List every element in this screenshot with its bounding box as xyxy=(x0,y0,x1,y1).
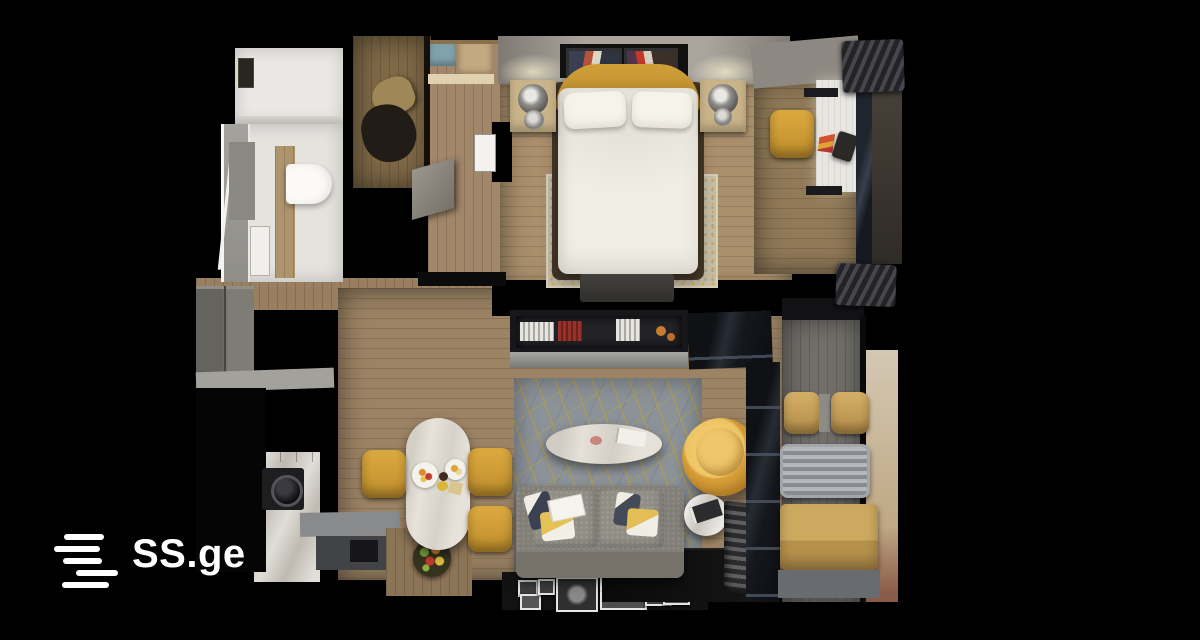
tv-bench xyxy=(580,274,674,302)
bed-pillow-right xyxy=(631,91,692,129)
balcony-bench xyxy=(780,504,878,570)
dining-chair-left xyxy=(362,450,406,498)
books-red xyxy=(558,321,582,341)
ss-bars-icon xyxy=(62,582,109,588)
floorplan-render: SS.ge xyxy=(0,0,1200,640)
bathroom-mirror-frame xyxy=(238,58,254,88)
gallery-frame-2 xyxy=(520,594,541,610)
shelf-decor-ball-2 xyxy=(667,333,675,341)
dining-plate-1 xyxy=(412,462,438,488)
gallery-frame-3 xyxy=(538,579,555,595)
dining-lemon xyxy=(437,481,448,491)
kitchen-cabinet-front xyxy=(264,390,328,462)
ss-bars-icon xyxy=(63,558,102,564)
ss-bars-icon xyxy=(54,546,100,552)
balcony-chair-divider xyxy=(819,394,830,432)
counter-sink-inset xyxy=(350,540,378,562)
table-lamp-left-glass xyxy=(524,110,544,130)
bedroom-window-glass xyxy=(856,80,872,266)
logo-text: SS.ge xyxy=(132,532,246,577)
balcony-glass-door xyxy=(746,362,780,602)
bed-pillow-left xyxy=(563,90,627,129)
dining-chair-right-top xyxy=(468,448,512,496)
sofa-back xyxy=(516,552,684,578)
hall-white-door xyxy=(474,134,496,172)
ss-logo: SS.ge xyxy=(50,526,240,596)
books-white-left xyxy=(520,322,554,341)
bathroom-vanity-edge xyxy=(235,116,343,124)
dining-chair-right-bottom xyxy=(468,506,512,552)
balcony-chair-2 xyxy=(831,392,869,434)
desk-chair xyxy=(770,110,814,158)
balcony-slat-table xyxy=(780,444,870,498)
hall-step xyxy=(418,272,506,286)
closet-shelf-band xyxy=(428,74,494,84)
washing-machine-door xyxy=(271,475,303,507)
curtain-top xyxy=(841,39,905,93)
balcony-chair-1 xyxy=(784,392,820,434)
storage-box-blue xyxy=(430,44,456,66)
coffee-table-decor xyxy=(590,436,602,445)
balcony-door-upper xyxy=(687,311,773,370)
dining-cup xyxy=(439,472,448,481)
books-white-right xyxy=(616,319,640,341)
bookshelf-base xyxy=(510,352,688,368)
balcony-floor-base xyxy=(778,570,880,598)
shower-panel xyxy=(229,142,255,220)
storage-box-tan xyxy=(458,44,492,78)
ss-bars-icon xyxy=(64,534,104,540)
shelf-decor-ball-1 xyxy=(656,326,666,336)
ss-bars-icon xyxy=(76,570,118,576)
table-lamp-right-glass xyxy=(714,108,732,126)
bathroom-cabinet xyxy=(250,226,270,276)
lounge-chair-cushion xyxy=(696,428,744,476)
desk-shelf-upper xyxy=(804,88,838,97)
curtain-bottom xyxy=(835,263,896,307)
desk-shelf-lower xyxy=(806,186,842,195)
dining-plate-2 xyxy=(445,459,466,480)
sofa-throw-yellow-right xyxy=(626,508,659,537)
gallery-frame-4 xyxy=(556,577,598,612)
toilet xyxy=(286,164,332,204)
